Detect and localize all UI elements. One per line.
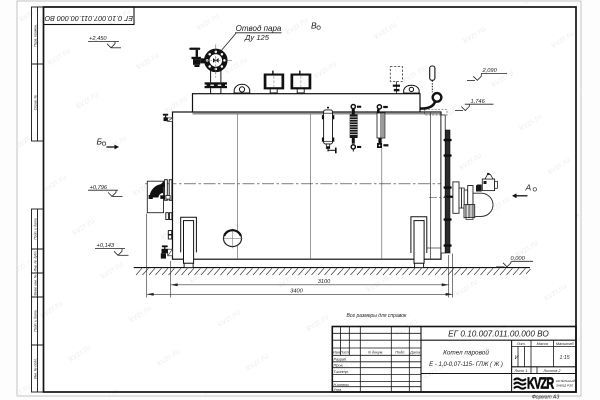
- svg-text:Лист: Лист: [339, 350, 350, 354]
- svg-text:Т.контр.: Т.контр.: [334, 370, 349, 374]
- svg-text:Дата: Дата: [409, 350, 420, 354]
- svg-text:Н.контр.: Н.контр.: [334, 383, 350, 387]
- svg-text:Взам. инв. №: Взам. инв. №: [33, 274, 37, 295]
- svg-text:KVZR: KVZR: [527, 376, 554, 393]
- svg-text:Листов 2: Листов 2: [543, 369, 562, 373]
- svg-text:КОТЕЛЬНЫЙ: КОТЕЛЬНЫЙ: [556, 379, 576, 383]
- svg-text:1,746: 1,746: [471, 99, 486, 105]
- svg-text:+2,450: +2,450: [89, 36, 107, 42]
- svg-text:И: И: [515, 355, 519, 361]
- svg-text:Е - 1,0-0,07-115- ГЛЖ ( Ж ): Е - 1,0-0,07-115- ГЛЖ ( Ж ): [429, 362, 503, 368]
- svg-text:Лист 1: Лист 1: [514, 369, 528, 373]
- svg-text:ЕГ 0.10.007.011.00.000 ВО: ЕГ 0.10.007.011.00.000 ВО: [448, 329, 549, 338]
- svg-text:Разраб.: Разраб.: [334, 357, 348, 361]
- svg-text:Подп. и дата: Подп. и дата: [33, 218, 37, 239]
- svg-text:N докум.: N докум.: [368, 350, 383, 354]
- svg-text:3100: 3100: [318, 279, 331, 285]
- svg-text:Котел паровой: Котел паровой: [443, 349, 489, 357]
- svg-text:Подп. и дата: Подп. и дата: [33, 310, 37, 331]
- svg-text:ЕГ 0.10.007.011.00.000 ВО: ЕГ 0.10.007.011.00.000 ВО: [44, 14, 133, 23]
- svg-text:Пров.: Пров.: [334, 364, 344, 368]
- svg-text:ЗАВОД РЭП: ЗАВОД РЭП: [556, 384, 574, 388]
- svg-text:Формат А3: Формат А3: [532, 395, 560, 400]
- svg-text:А: А: [525, 183, 532, 193]
- svg-text:+0,143: +0,143: [97, 243, 115, 249]
- svg-text:2,090: 2,090: [482, 68, 498, 74]
- svg-text:3400: 3400: [290, 289, 303, 295]
- svg-text:0,000: 0,000: [511, 256, 526, 262]
- svg-text:Утв.: Утв.: [334, 388, 343, 392]
- svg-text:Инв. № дубл.: Инв. № дубл.: [33, 251, 37, 272]
- svg-text:+0,796: +0,796: [90, 185, 108, 191]
- svg-text:Перв. примен.: Перв. примен.: [33, 24, 37, 47]
- svg-text:Справ. №: Справ. №: [33, 94, 37, 110]
- svg-text:Масса: Масса: [537, 342, 548, 346]
- svg-text:Отвод пара: Отвод пара: [236, 24, 282, 33]
- svg-text:Все размеры для справок: Все размеры для справок: [347, 313, 408, 319]
- svg-text:1:15: 1:15: [560, 355, 570, 361]
- svg-text:Масштаб: Масштаб: [556, 342, 575, 346]
- svg-text:Б: Б: [97, 137, 103, 147]
- svg-text:Подп.: Подп.: [395, 350, 405, 354]
- svg-text:Ду 125: Ду 125: [244, 33, 270, 42]
- svg-text:Инв. № подл.: Инв. № подл.: [33, 358, 37, 379]
- svg-text:Лит.: Лит.: [516, 342, 526, 346]
- svg-text:В: В: [311, 21, 317, 31]
